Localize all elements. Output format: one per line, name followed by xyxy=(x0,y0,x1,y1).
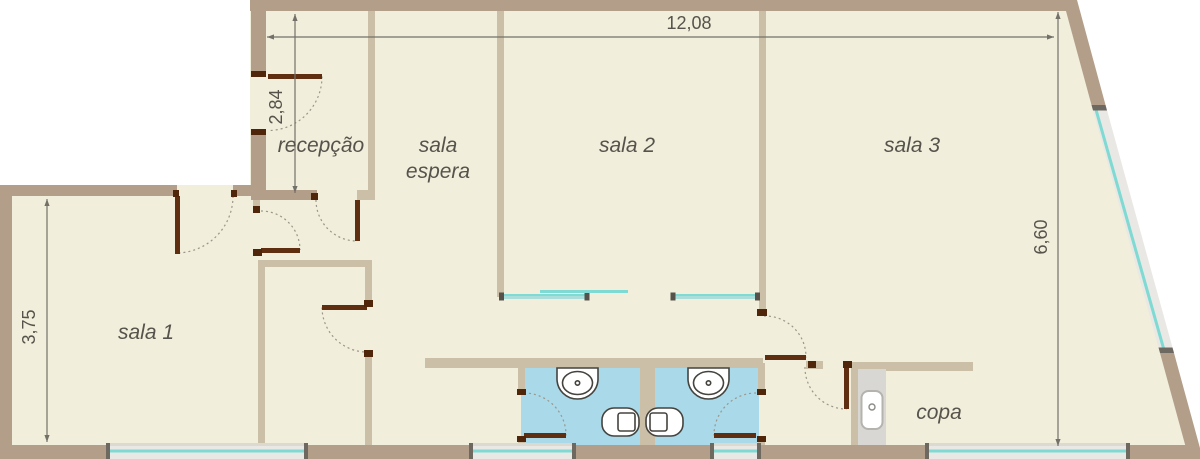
wall-sala1-top-a xyxy=(0,185,177,196)
wall-bath1-left-upper xyxy=(518,363,525,392)
door-jamb xyxy=(231,190,237,197)
room-label-recepcao: recepção xyxy=(278,134,365,157)
floor-plan-svg: 12,08 2,84 3,75 6,60 recepção sala esper… xyxy=(0,0,1200,459)
wall-sala2-sala3 xyxy=(759,11,766,315)
door-jamb xyxy=(251,129,266,135)
wall-left xyxy=(0,185,12,459)
toilet-2-icon xyxy=(646,408,683,436)
room-label-copa: copa xyxy=(916,401,962,424)
door-jamb xyxy=(253,206,260,213)
room-label-sala-2: sala 2 xyxy=(599,134,655,157)
door-jamb xyxy=(173,190,179,197)
wall-storage-right-lower xyxy=(365,352,372,445)
window-hall xyxy=(469,443,576,459)
window-bath2 xyxy=(710,443,761,459)
wall-storage-left xyxy=(258,260,265,445)
wall-espera-sala2 xyxy=(497,11,504,297)
door-jamb xyxy=(253,249,262,256)
wall-bottom-4 xyxy=(758,445,928,459)
door-jamb xyxy=(364,300,373,307)
dimension-label-sala-1-depth: 3,75 xyxy=(19,309,39,344)
wall-bottom-2 xyxy=(305,445,472,459)
door-jamb xyxy=(757,389,766,395)
room-label-sala-espera-line1: sala xyxy=(419,134,458,157)
wall-recepcao-espera xyxy=(368,11,375,195)
room-label-sala-1: sala 1 xyxy=(118,321,174,344)
door-jamb xyxy=(808,361,816,368)
toilet-1-icon xyxy=(602,408,639,436)
wall-hall-bathrooms xyxy=(425,358,763,368)
wall-bottom-3 xyxy=(573,445,713,459)
wall-copa-left xyxy=(851,362,858,445)
dimension-label-recepcao-depth: 2,84 xyxy=(266,89,286,124)
door-jamb xyxy=(757,309,767,316)
wall-recepcao-left-upper xyxy=(251,0,266,77)
window-copa xyxy=(925,443,1130,459)
bathroom-sink-1-icon xyxy=(557,368,598,399)
window-sala1 xyxy=(106,443,308,459)
dimension-label-overall-width: 12,08 xyxy=(666,13,711,33)
room-label-sala-espera-line2: espera xyxy=(406,160,470,183)
bathroom-sink-2-icon xyxy=(688,368,729,399)
wall-storage-top xyxy=(258,260,372,267)
wall-bath2-right-upper xyxy=(758,363,765,392)
wall-bottom-1 xyxy=(0,445,109,459)
wall-storage-right-upper xyxy=(365,267,372,305)
wall-sala1-top-b xyxy=(233,185,263,196)
door-jamb xyxy=(843,361,852,368)
room-storage-floor xyxy=(265,267,366,445)
door-jamb xyxy=(517,436,526,442)
wall-top xyxy=(250,0,1066,11)
floor-plan-canvas: 12,08 2,84 3,75 6,60 recepção sala esper… xyxy=(0,0,1200,459)
door-jamb xyxy=(757,436,766,442)
wall-stub-espera xyxy=(357,190,375,200)
door-jamb xyxy=(364,350,373,357)
door-jamb xyxy=(517,389,526,395)
room-sala-3-floor xyxy=(766,11,1160,358)
kitchen-sink-icon xyxy=(862,391,883,429)
door-jamb xyxy=(311,193,318,200)
door-jamb xyxy=(251,71,266,77)
dimension-label-right-height: 6,60 xyxy=(1031,219,1051,254)
wall-bottom-5 xyxy=(1127,445,1192,459)
room-copa-floor xyxy=(858,371,1185,445)
room-label-sala-3: sala 3 xyxy=(884,134,940,157)
